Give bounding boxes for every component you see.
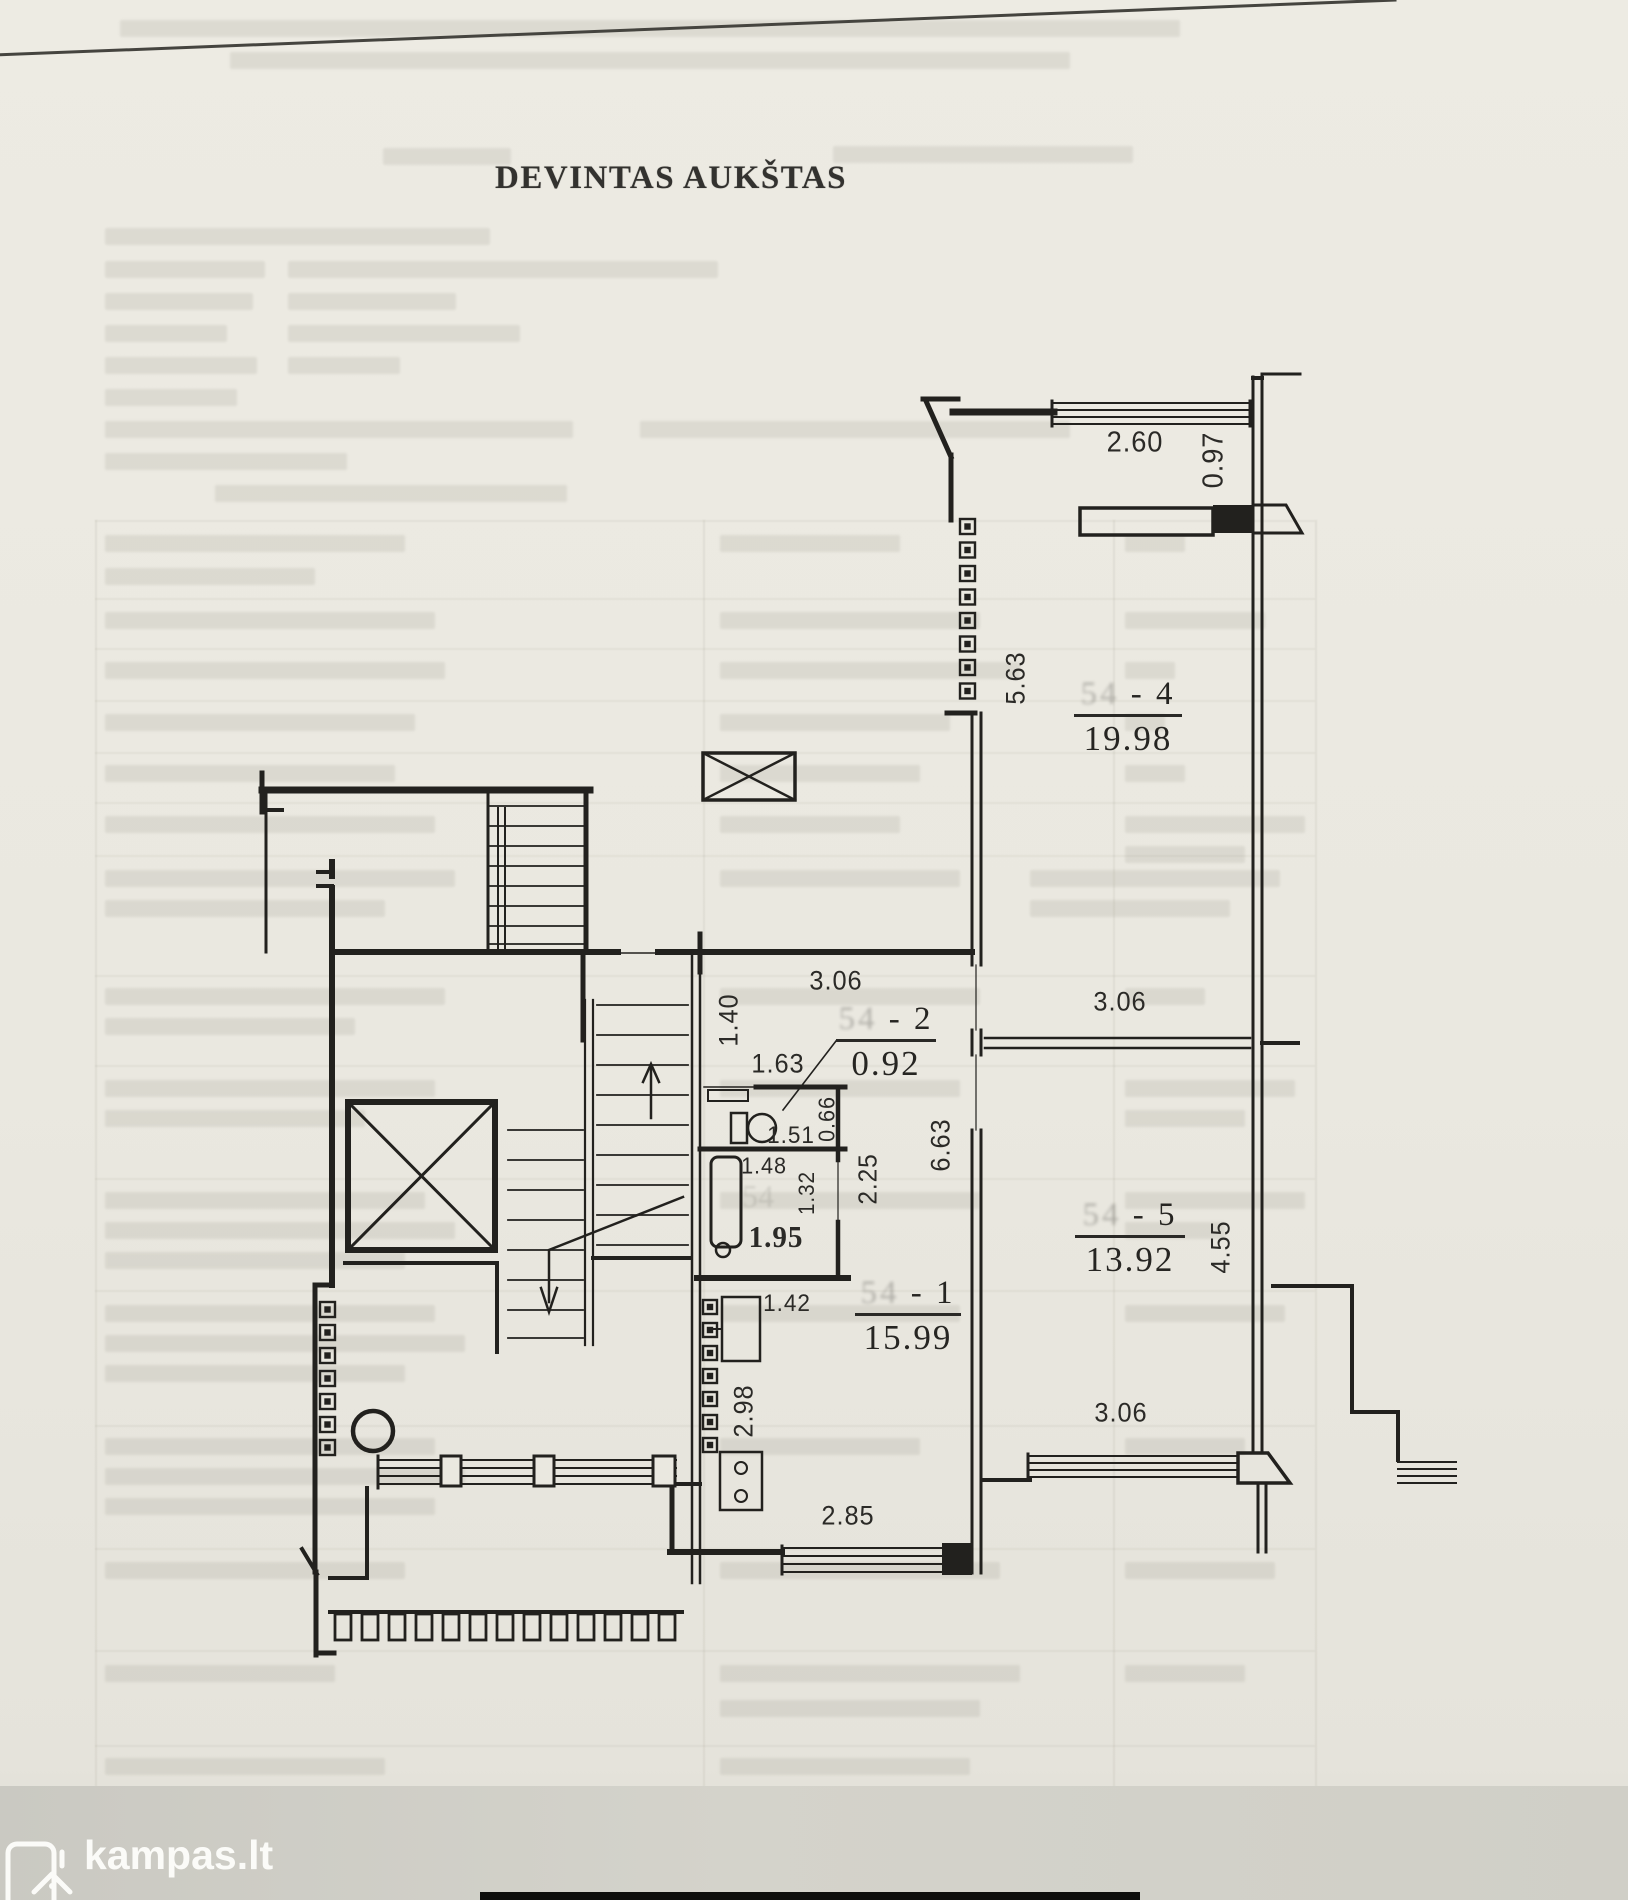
dimension-label: 1.42 — [763, 1290, 811, 1318]
dimension-label: 1.48 — [741, 1153, 787, 1180]
faint-stamp: 54 — [742, 1178, 774, 1215]
room-area: 15.99 — [855, 1318, 961, 1358]
kampas-logo-text: kampas.lt — [84, 1832, 273, 1879]
room-number: 54 - 4 — [1074, 676, 1182, 713]
watermark-band: kampas.lt — [0, 1786, 1628, 1900]
room-label: 54 - 419.98 — [1074, 676, 1182, 759]
dimension-label: 2.98 — [729, 1384, 760, 1437]
scan-artifact-bar — [480, 1892, 1140, 1900]
dimension-label: 2.25 — [853, 1153, 884, 1204]
dimension-label: 4.55 — [1206, 1220, 1237, 1273]
dimension-label: 0.66 — [814, 1096, 841, 1142]
dimension-label: 2.60 — [1107, 427, 1164, 460]
room-label: 54 - 513.92 — [1075, 1197, 1185, 1280]
room-number: 54 - 5 — [1075, 1197, 1185, 1234]
dimension-label: 1.51 — [767, 1122, 815, 1150]
room-label: 54 - 115.99 — [855, 1275, 961, 1358]
room-label: 54 - 20.92 — [836, 1001, 936, 1084]
dimension-label: 1.63 — [751, 1049, 804, 1080]
dimension-label: 0.97 — [1198, 432, 1231, 489]
dimension-label: 2.85 — [821, 1501, 874, 1532]
room-number: 54 - 1 — [855, 1275, 961, 1312]
room-area: 19.98 — [1074, 719, 1182, 759]
room-area: 13.92 — [1075, 1240, 1185, 1280]
dimension-label: 1.40 — [714, 993, 745, 1046]
dimension-labels-layer: 2.600.975.633.061.401.630.661.513.066.63… — [0, 0, 1628, 1900]
dimension-label: 5.63 — [1001, 651, 1032, 704]
scanned-floorplan-page: DEVINTAS AUKŠTAS — [0, 0, 1628, 1900]
dimension-label: 6.63 — [926, 1118, 957, 1171]
dimension-label: 3.06 — [1094, 1398, 1147, 1429]
dimension-label: 3.06 — [809, 966, 862, 997]
dimension-label: 1.95 — [749, 1219, 804, 1255]
room-number: 54 - 2 — [836, 1001, 936, 1038]
dimension-label: 1.32 — [794, 1171, 820, 1215]
room-area: 0.92 — [836, 1044, 936, 1084]
dimension-label: 3.06 — [1093, 987, 1146, 1018]
